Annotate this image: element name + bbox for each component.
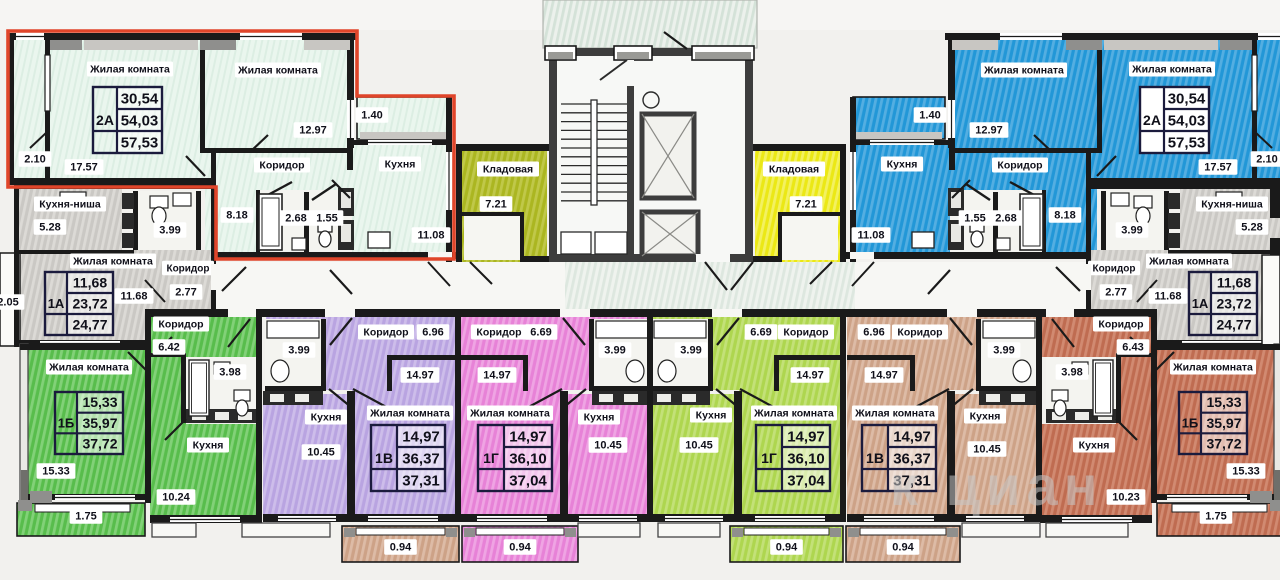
svg-text:Кладовая: Кладовая [483,164,533,176]
svg-text:6.69: 6.69 [530,327,551,339]
svg-text:1.55: 1.55 [964,213,985,225]
svg-text:15,33: 15,33 [82,394,117,410]
svg-text:1Б: 1Б [58,416,75,431]
svg-text:2.10: 2.10 [24,154,45,166]
svg-text:2А: 2А [96,112,114,128]
svg-text:11.08: 11.08 [418,230,445,242]
svg-text:Коридор: Коридор [476,327,521,339]
svg-text:10.45: 10.45 [594,440,622,452]
svg-text:1.40: 1.40 [361,110,382,122]
svg-text:2.10: 2.10 [1256,154,1277,166]
svg-text:10.45: 10.45 [685,440,713,452]
svg-text:1.75: 1.75 [75,511,96,523]
svg-text:15.33: 15.33 [42,466,70,478]
svg-text:11.68: 11.68 [121,291,148,303]
svg-text:Жилая комната: Жилая комната [72,256,153,268]
svg-text:3.99: 3.99 [604,345,625,357]
svg-text:11,68: 11,68 [1217,274,1251,290]
svg-text:Кухня: Кухня [887,159,918,171]
svg-text:3.99: 3.99 [680,345,701,357]
svg-text:Жилая комната: Жилая комната [469,408,550,420]
svg-text:Кладовая: Кладовая [769,164,819,176]
svg-text:Коридор: Коридор [897,327,942,339]
svg-text:24,77: 24,77 [72,316,107,332]
svg-text:12.97: 12.97 [975,125,1003,137]
svg-text:10.23: 10.23 [1112,492,1140,504]
svg-text:Кухня: Кухня [696,410,727,422]
svg-text:6.96: 6.96 [863,327,884,339]
svg-text:2.77: 2.77 [175,287,196,299]
svg-text:23,72: 23,72 [72,295,107,311]
svg-text:6.69: 6.69 [750,327,771,339]
svg-text:7.21: 7.21 [485,199,506,211]
svg-text:Кухня-ниша: Кухня-ниша [1201,199,1263,211]
svg-text:35,97: 35,97 [82,415,117,431]
svg-text:1.55: 1.55 [316,213,337,225]
svg-text:37,31: 37,31 [402,472,440,489]
svg-text:1А: 1А [48,296,65,311]
svg-text:Коридор: Коридор [259,160,304,172]
svg-text:11,68: 11,68 [73,274,107,290]
svg-text:6.96: 6.96 [422,327,443,339]
svg-text:37,72: 37,72 [82,436,117,452]
svg-text:Коридор: Коридор [783,327,828,339]
svg-text:15.33: 15.33 [1232,466,1260,478]
svg-text:Жилая комната: Жилая комната [1131,64,1212,76]
svg-text:14.97: 14.97 [483,370,511,382]
svg-text:17.57: 17.57 [1204,162,1232,174]
svg-text:37,72: 37,72 [1206,436,1241,452]
svg-text:Жилая комната: Жилая комната [1172,362,1253,374]
svg-text:2.05: 2.05 [0,297,19,309]
svg-text:Коридор: Коридор [363,327,408,339]
svg-text:14.97: 14.97 [870,370,898,382]
svg-text:57,53: 57,53 [1168,134,1206,151]
svg-text:0.94: 0.94 [390,542,412,554]
svg-text:1В: 1В [375,450,393,466]
svg-text:2.68: 2.68 [995,213,1016,225]
svg-text:14,97: 14,97 [787,428,825,445]
svg-text:Жилая комната: Жилая комната [89,64,170,76]
svg-text:3.99: 3.99 [993,345,1014,357]
svg-text:57,53: 57,53 [121,134,159,151]
svg-text:14,97: 14,97 [509,428,547,445]
svg-text:Кухня: Кухня [311,412,342,424]
svg-text:8.18: 8.18 [226,210,247,222]
svg-text:2.68: 2.68 [285,213,306,225]
svg-text:5.28: 5.28 [39,222,60,234]
svg-text:36,37: 36,37 [402,450,440,467]
svg-text:Кухня: Кухня [193,440,224,452]
svg-text:0.94: 0.94 [892,542,914,554]
svg-text:54,03: 54,03 [121,112,159,129]
svg-text:Жилая комната: Жилая комната [1148,256,1229,268]
svg-text:1В: 1В [866,450,884,466]
svg-text:0.94: 0.94 [509,542,531,554]
svg-text:Коридор: Коридор [997,160,1042,172]
svg-text:12.97: 12.97 [299,125,327,137]
svg-text:Коридор: Коридор [1092,263,1135,274]
svg-text:35,97: 35,97 [1206,415,1241,431]
svg-text:Жилая комната: Жилая комната [48,362,129,374]
svg-text:Кухня: Кухня [584,412,615,424]
svg-text:Кухня: Кухня [1079,440,1110,452]
svg-text:5.28: 5.28 [1241,222,1262,234]
svg-text:1Б: 1Б [1182,416,1199,431]
svg-text:1А: 1А [1192,296,1209,311]
svg-text:15,33: 15,33 [1206,394,1241,410]
svg-text:Коридор: Коридор [1098,319,1143,331]
svg-text:3.98: 3.98 [219,367,240,379]
svg-text:36,10: 36,10 [509,450,547,467]
svg-text:Коридор: Коридор [158,319,203,331]
svg-text:3.99: 3.99 [1121,225,1142,237]
svg-text:3.99: 3.99 [159,225,180,237]
svg-text:Жилая комната: Жилая комната [369,408,450,420]
svg-text:3.98: 3.98 [1061,367,1082,379]
svg-text:10.45: 10.45 [307,447,335,459]
svg-text:14,97: 14,97 [402,428,440,445]
svg-text:Жилая комната: Жилая комната [983,65,1064,77]
svg-text:2А: 2А [1143,112,1161,128]
svg-text:Жилая комната: Жилая комната [854,408,935,420]
svg-text:24,77: 24,77 [1216,316,1251,332]
svg-text:37,04: 37,04 [787,472,825,489]
svg-text:0.94: 0.94 [776,542,798,554]
svg-text:Жилая комната: Жилая комната [237,65,318,77]
svg-text:1Г: 1Г [483,450,499,466]
svg-text:11.08: 11.08 [858,230,885,242]
svg-text:6.43: 6.43 [1122,342,1143,354]
svg-text:Жилая комната: Жилая комната [753,408,834,420]
svg-text:1Г: 1Г [761,450,777,466]
svg-text:Кухня-ниша: Кухня-ниша [39,199,101,211]
svg-text:3.99: 3.99 [288,345,309,357]
svg-text:Кухня: Кухня [970,411,1001,423]
svg-text:Кухня: Кухня [385,159,416,171]
svg-text:к циан: к циан [890,454,1103,517]
svg-text:30,54: 30,54 [121,90,159,107]
svg-text:36,10: 36,10 [787,450,825,467]
svg-text:7.21: 7.21 [795,199,816,211]
svg-text:54,03: 54,03 [1168,112,1206,129]
svg-text:14,97: 14,97 [893,428,931,445]
svg-text:6.42: 6.42 [158,342,179,354]
svg-text:1.40: 1.40 [919,110,940,122]
svg-text:2.77: 2.77 [1105,287,1126,299]
svg-text:17.57: 17.57 [70,162,98,174]
svg-text:10.24: 10.24 [162,492,190,504]
svg-text:1.75: 1.75 [1205,511,1226,523]
svg-text:30,54: 30,54 [1168,90,1206,107]
svg-text:8.18: 8.18 [1054,210,1075,222]
svg-text:14.97: 14.97 [796,370,824,382]
svg-text:Коридор: Коридор [166,263,209,274]
svg-text:37,04: 37,04 [509,472,547,489]
svg-text:14.97: 14.97 [406,370,434,382]
svg-text:11.68: 11.68 [1155,291,1182,303]
svg-text:23,72: 23,72 [1216,295,1251,311]
